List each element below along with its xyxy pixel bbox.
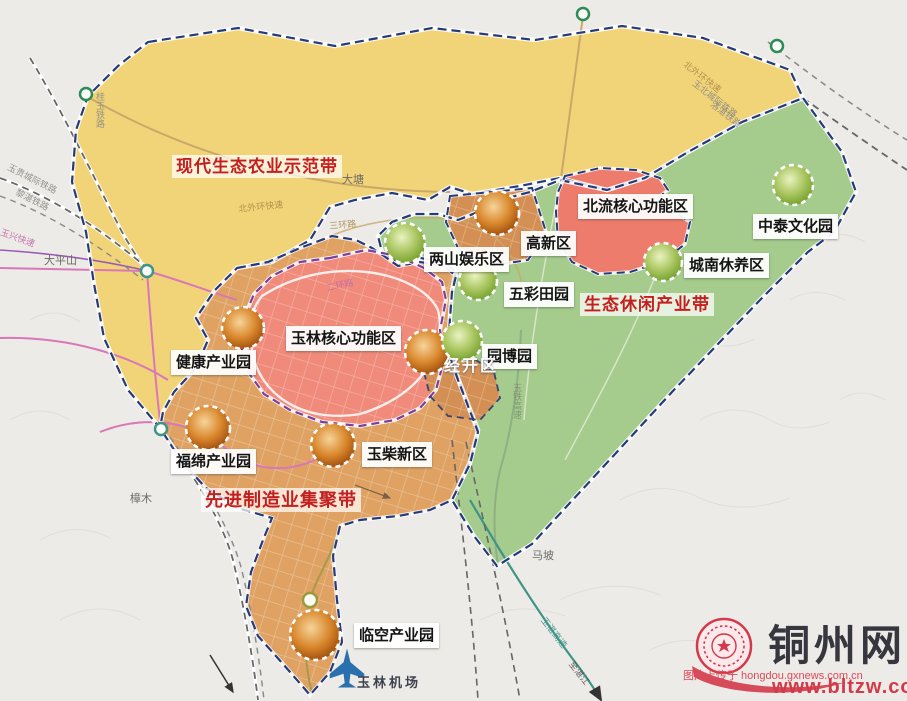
label-yulin-core: 玉林核心功能区 [286,326,401,351]
label-beiliu-core: 北流核心功能区 [578,194,693,219]
road-label-guiyu-railway: 桂玉铁路 [95,92,104,128]
label-chengnan-area: 城南休养区 [684,253,769,278]
marker-yuanbo [442,321,482,361]
map-canvas [0,0,907,701]
road-label-yutie-expwy: 玉铁高速 [512,383,521,419]
belt-label-manufacturing: 先进制造业集聚带 [201,488,361,512]
label-linkong-park: 临空产业园 [354,623,439,648]
marker-fumian [186,406,230,450]
label-yuchai-area: 玉柴新区 [362,442,432,467]
belt-label-leisure: 生态休闲产业带 [580,293,714,316]
label-fumian-park: 福绵产业园 [171,449,256,474]
label-jingkai-district: 经开区 [444,359,498,375]
label-zhongtai-park: 中泰文化园 [753,214,838,239]
place-mapo: 马坡 [532,551,554,562]
marker-gaoxin [475,191,519,235]
marker-jiankang [222,307,264,349]
label-yulin-airport: 玉林机场 [357,676,421,689]
watermark-site-name: 铜州网 [768,625,906,667]
planning-map: 现代生态农业示范带 生态休闲产业带 先进制造业集聚带 北流核心功能区 中泰文化园… [0,0,907,701]
marker-chengnan [644,243,682,281]
watermark-site-url: www.bltzw.com [772,677,907,697]
place-zhangmu: 樟木 [130,494,152,505]
label-liangshan-area: 两山娱乐区 [424,247,509,272]
marker-liangshan [385,223,425,263]
label-gaoxin-district: 高新区 [521,231,576,256]
place-datang: 大塘 [342,175,364,186]
marker-yuchai [311,423,355,467]
label-wucai-fields: 五彩田园 [504,282,574,307]
place-dapingshan: 大平山 [44,256,77,267]
belt-label-agriculture: 现代生态农业示范带 [172,155,342,178]
marker-linkong [290,610,340,660]
label-jiankang-park: 健康产业园 [171,350,256,375]
marker-zhongtai [773,165,813,205]
